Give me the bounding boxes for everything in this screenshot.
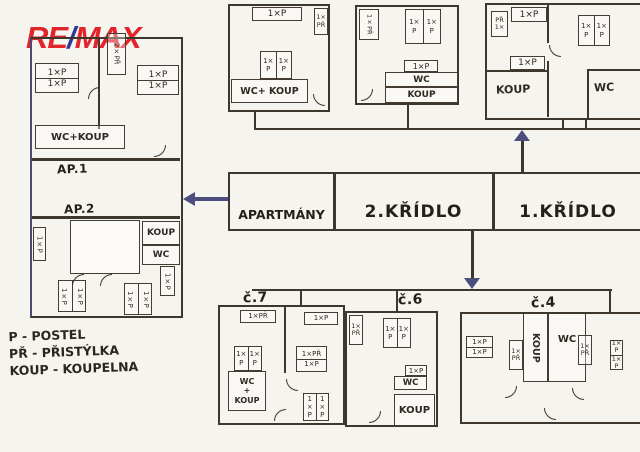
bathroom-label: KOUP: [394, 394, 435, 426]
extra-bed-label: 1×PŘ: [509, 340, 523, 370]
bed-label: 1×P: [384, 319, 398, 347]
bed-label: 1×P: [511, 7, 547, 22]
plan-apartments: 1×P 1×P 2×PŘ 1×P 1×P WC+KOUP AP.1 AP.2 K…: [30, 37, 183, 318]
bed-label: 1×P: [466, 338, 493, 347]
plan-room-7: 1×PŘ 1×P 1×P 1×P 1×PŘ 1×P WC + KOUP 1×P …: [218, 305, 345, 425]
bed-label: 1×P: [304, 394, 317, 420]
bed-table: 1×P 1×P: [405, 9, 441, 44]
wc-label: WC: [594, 81, 615, 95]
bed-label: 1×P: [405, 365, 427, 376]
arrow-left-line: [194, 197, 228, 201]
room-rect: [70, 220, 140, 274]
bed-table: 1×PŘ 1×P: [296, 346, 327, 372]
arrow-up-line: [521, 138, 524, 172]
wc-label: WC: [394, 376, 427, 390]
wall: [32, 216, 180, 219]
arrow-left-icon: [183, 192, 195, 206]
wall: [587, 69, 640, 71]
door-arc: [572, 388, 584, 400]
bathroom-label: WC + KOUP: [228, 371, 266, 411]
door-arc: [369, 411, 381, 423]
apartment-1-label: AP.1: [57, 161, 88, 176]
wall: [284, 307, 286, 373]
bed-label: 1×P: [36, 79, 78, 89]
bed-label: 1×P: [277, 52, 292, 78]
arrow-down-icon: [464, 278, 480, 289]
bed-table: 1×P 1×P: [466, 336, 493, 358]
bed-label: 1×P: [36, 68, 78, 79]
bathroom-label: KOUP: [496, 82, 531, 96]
bed-table: 1×P 1×P: [124, 283, 152, 315]
bed-table: 1×P 1×P: [303, 393, 329, 421]
door-arc: [505, 386, 517, 398]
bed-label: 1×P: [252, 7, 302, 21]
bed-label: 1×P: [304, 312, 338, 325]
door-arc: [361, 89, 373, 101]
connector-rail-bottom: [252, 289, 612, 291]
bed-label: 1×P: [160, 266, 175, 296]
bed-label: 1×P: [610, 340, 623, 355]
door-arc: [100, 274, 112, 286]
connector-rail-top: [254, 128, 640, 130]
wall: [587, 69, 589, 119]
legend-line: KOUP - KOUPELNA: [9, 358, 138, 379]
overview-box: APARTMÁNY 2.KŘÍDLO 1.KŘÍDLO: [228, 172, 640, 231]
room-6-label: č.6: [398, 292, 423, 309]
bed-label: 1×P: [317, 394, 329, 420]
apartment-2-label: AP.2: [64, 201, 95, 216]
plan-top-1: 1×P 1×PŘ 1×P 1×P WC+ KOUP: [228, 4, 330, 112]
wall: [547, 5, 549, 43]
door-arc: [549, 45, 561, 57]
extra-bed-label: 1×PŘ: [359, 9, 379, 40]
door-arc: [72, 274, 84, 286]
extra-bed-label: 1×PŘ: [296, 350, 327, 359]
bed-label: 1×P: [138, 81, 178, 91]
door-arc: [274, 409, 286, 421]
bed-label: 1×P: [261, 52, 277, 78]
bed-table: 1×P 1×P: [260, 51, 292, 79]
door-arc: [88, 87, 100, 99]
overview-cell-wing2: 2.KŘÍDLO: [335, 174, 492, 229]
bed-table: 1×P 1×P: [137, 65, 179, 95]
door-arc: [286, 379, 298, 391]
bathroom-label: KOUP: [523, 314, 548, 382]
connector-stub: [407, 105, 409, 129]
bathroom-label: WC+ KOUP: [231, 79, 308, 103]
bed-label: 1×P: [398, 319, 411, 347]
plan-room-6: 1×PŘ 1×P 1×P 1×P WC KOUP: [345, 311, 438, 427]
bed-label: 1×P: [595, 16, 610, 45]
extra-bed-label: 1×PŘ: [349, 315, 363, 345]
bed-label: 1×P: [138, 70, 178, 81]
bed-label: 1×P: [424, 10, 441, 43]
room-4-label: č.4: [531, 295, 556, 312]
extra-bed-label: 1×PŘ: [240, 310, 276, 323]
bed-label: 1×P: [466, 348, 493, 356]
plan-top-3: PŘ 1× 1×P 1×P 1×P 1×P KOUP WC: [485, 3, 640, 120]
bed-label: 1×P: [610, 356, 623, 370]
overview-cell-wing1: 1.KŘÍDLO: [494, 174, 640, 229]
extra-bed-label: 2×PŘ: [107, 33, 126, 75]
bathroom-label: KOUP: [385, 87, 458, 103]
door-arc: [154, 145, 166, 157]
wall: [487, 70, 547, 72]
wc-label: WC: [385, 72, 458, 87]
legend: P - POSTEL PŘ - PŘISTÝLKA KOUP - KOUPELN…: [8, 325, 138, 380]
plan-room-4: 1×P 1×P 1×PŘ KOUP WC 1×PŘ 1×P 1×P: [460, 312, 640, 424]
extra-bed-label: PŘ 1×: [491, 11, 508, 37]
bed-label: 1×P: [296, 360, 327, 368]
bed-label: 1×P: [57, 281, 73, 311]
arrow-up-icon: [514, 130, 530, 141]
bed-label: 1×P: [404, 60, 438, 72]
arrow-down-line: [471, 231, 474, 278]
bed-label: 1×P: [406, 10, 424, 43]
floor-plan-sketch: RE/MAX 1×P 1×P 2×PŘ 1×P 1×P WC+KOUP AP.1…: [0, 0, 640, 452]
bed-label: 1×P: [33, 227, 46, 261]
bed-table: 1×P 1×P: [383, 318, 411, 348]
wc-label: WC: [142, 245, 180, 265]
bathroom-label: WC+KOUP: [35, 125, 125, 149]
bed-label: 1×P: [579, 16, 595, 45]
wall: [32, 158, 180, 161]
bed-table: 1×P 1×P: [35, 63, 79, 93]
bed-table: 1×P 1×P: [578, 15, 610, 46]
door-arc: [544, 408, 556, 420]
overview-cell-apartmany: APARTMÁNY: [230, 174, 333, 229]
bed-label: 1×P: [139, 284, 154, 314]
door-arc: [313, 94, 325, 106]
connector-stub: [254, 112, 256, 129]
bed-label: 1×P: [235, 347, 249, 370]
extra-bed-label: 1×PŘ: [578, 335, 592, 365]
extra-bed-label: 1×PŘ: [314, 8, 328, 35]
bathroom-line: WC: [240, 377, 255, 387]
connector-stub: [609, 289, 611, 313]
bed-table: 1×P 1×P: [610, 340, 623, 370]
room-7-label: č.7: [243, 290, 268, 307]
bed-table: 1×P 1×P: [234, 346, 262, 371]
bathroom-line: +: [244, 386, 251, 396]
wall: [547, 61, 549, 117]
bed-label: 1×P: [249, 347, 262, 370]
bed-label: 1×P: [510, 56, 545, 70]
wall: [98, 39, 100, 129]
bed-label: 1×P: [123, 284, 139, 314]
bathroom-label: KOUP: [142, 221, 180, 245]
plan-top-2: 1×PŘ 1×P 1×P 1×P WC KOUP: [355, 5, 459, 105]
bathroom-line: KOUP: [235, 396, 260, 406]
